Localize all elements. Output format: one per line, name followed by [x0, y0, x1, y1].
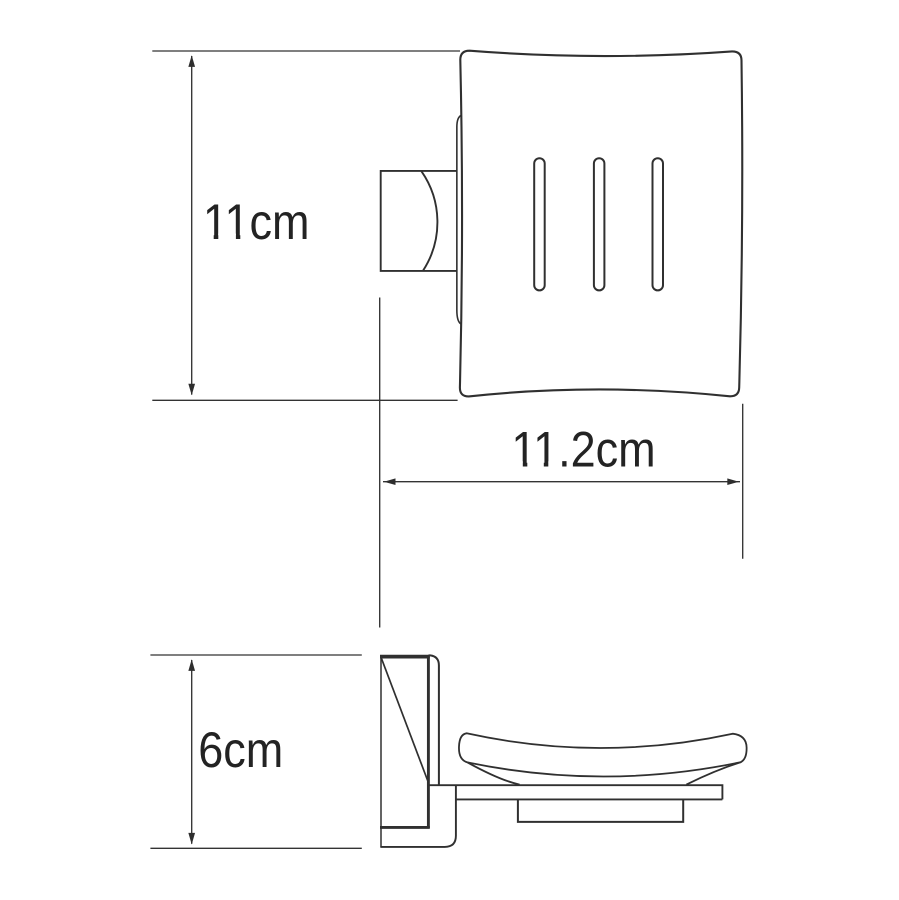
svg-text:11cm: 11cm — [203, 195, 310, 251]
svg-text:11.2cm: 11.2cm — [511, 423, 655, 479]
svg-text:6cm: 6cm — [198, 723, 283, 779]
